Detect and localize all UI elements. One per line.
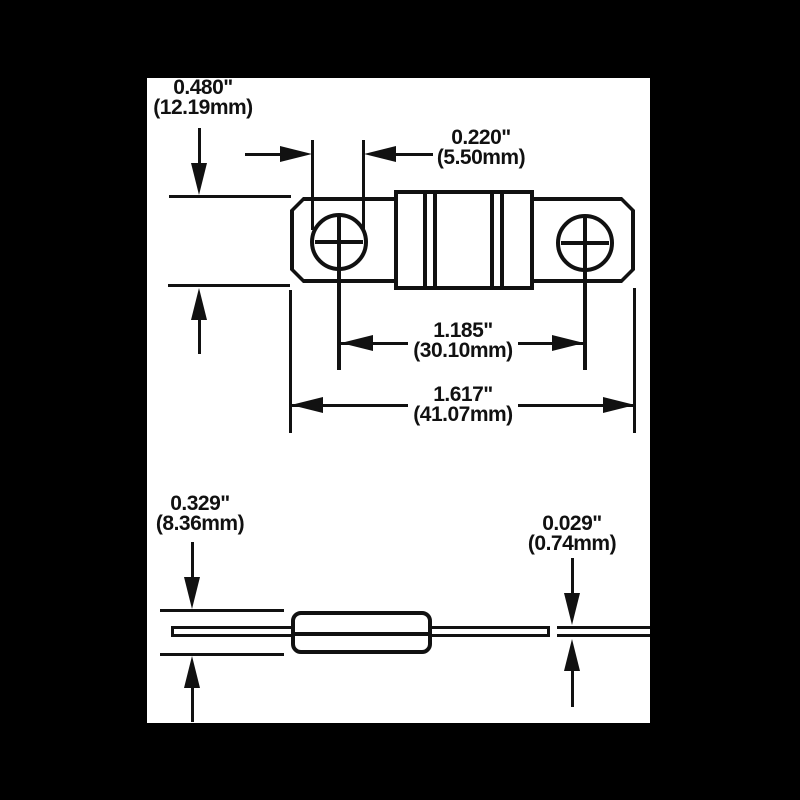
label-hole-spacing: 1.185" (30.10mm) (408, 321, 518, 361)
label-overall-length-inch: 1.617" (408, 385, 518, 405)
label-tab-thickness-inch: 0.029" (472, 514, 672, 534)
label-tab-thickness: 0.029" (0.74mm) (472, 514, 672, 554)
fuse-body-rib (490, 194, 494, 286)
arrow-stem-body-height-down (191, 542, 194, 580)
arrow-stem-body-height-up (191, 686, 194, 722)
terminal-tab-left-side-view (171, 626, 295, 637)
arrowhead-overall-left (291, 397, 323, 413)
label-hole-diameter-mm: (5.50mm) (381, 148, 581, 168)
tab-thickness-ext-top (557, 626, 650, 629)
fuse-body-rib (433, 194, 437, 286)
fuse-body-side-view (291, 611, 432, 654)
label-body-height: 0.329" (8.36mm) (100, 494, 300, 534)
tab-thickness-ext-bottom (557, 634, 650, 637)
arrowhead-overall-right (603, 397, 635, 413)
label-body-height-inch: 0.329" (100, 494, 300, 514)
label-hole-spacing-mm: (30.10mm) (408, 341, 518, 361)
arrowhead-hole-spacing-left (341, 335, 373, 351)
arrowhead-body-height-down (184, 577, 200, 609)
arrowhead-plate-height-up (191, 288, 207, 320)
label-hole-diameter: 0.220" (5.50mm) (381, 128, 581, 168)
label-plate-height: 0.480" (12.19mm) (103, 78, 303, 118)
fuse-body-top-view (394, 190, 534, 290)
arrowhead-hole-diameter-right (280, 146, 312, 162)
label-plate-height-inch: 0.480" (103, 78, 303, 98)
ext-line-plate-top (169, 195, 291, 198)
label-hole-diameter-inch: 0.220" (381, 128, 581, 148)
fuse-body-parting-line (295, 632, 428, 636)
arrowhead-tab-thickness-down (564, 593, 580, 625)
terminal-tab-right-side-view (428, 626, 550, 637)
fuse-body-rib (423, 194, 427, 286)
label-body-height-mm: (8.36mm) (100, 514, 300, 534)
arrow-stem-plate-height-down (198, 128, 201, 166)
arrowhead-hole-spacing-right (552, 335, 584, 351)
label-hole-spacing-inch: 1.185" (408, 321, 518, 341)
fuse-dimension-drawing: 0.480" (12.19mm) 0.220" (5.50mm) 1.185" … (0, 0, 800, 800)
arrow-stem-tab-thickness-down (571, 558, 574, 594)
ext-line-body-top (160, 609, 284, 612)
arrowhead-body-height-up (184, 656, 200, 688)
arrowhead-plate-height-down (191, 163, 207, 195)
label-plate-height-mm: (12.19mm) (103, 98, 303, 118)
arrowhead-tab-thickness-up (564, 639, 580, 671)
arrow-stem-tab-thickness-up (571, 669, 574, 707)
dim-line-hole-diameter-left (245, 153, 282, 156)
arrow-stem-plate-height-up (198, 318, 201, 354)
label-overall-length-mm: (41.07mm) (408, 405, 518, 425)
ext-line-plate-bottom (168, 284, 290, 287)
fuse-body-rib (500, 194, 504, 286)
label-tab-thickness-mm: (0.74mm) (472, 534, 672, 554)
ext-line-body-bottom (160, 653, 284, 656)
label-overall-length: 1.617" (41.07mm) (408, 385, 518, 425)
